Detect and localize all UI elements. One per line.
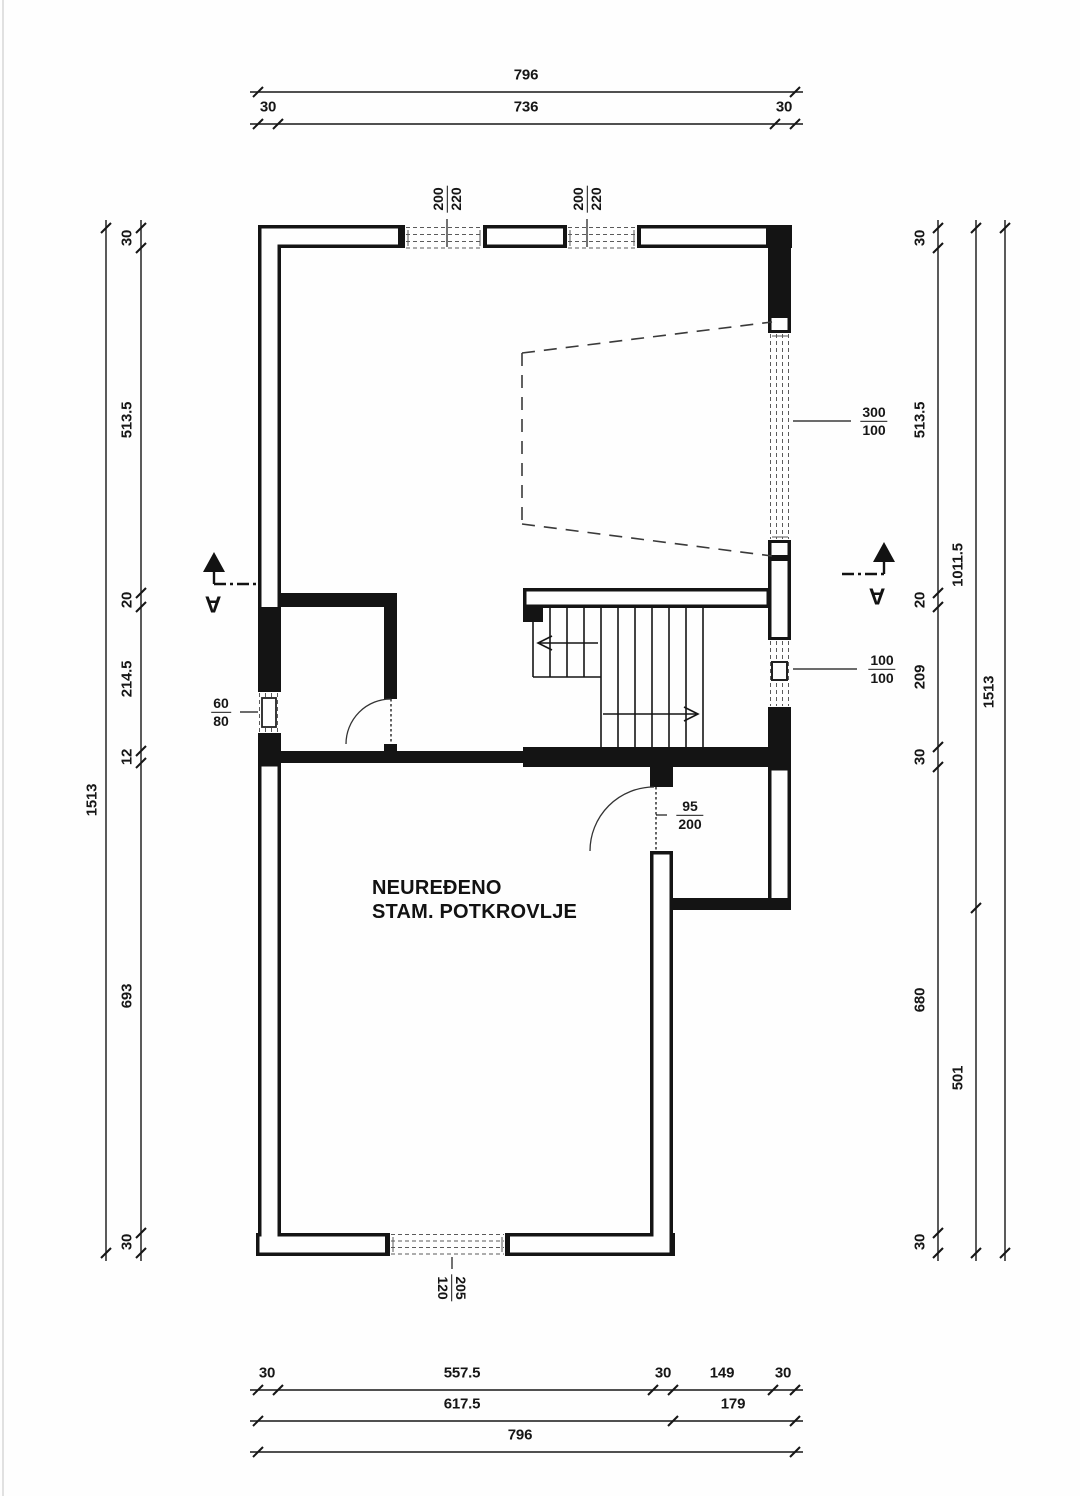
dim-label: 30 <box>776 99 792 116</box>
drawing-sheet: 796 30 736 30 1513 30 513.5 20 214.5 12 … <box>0 0 1080 1496</box>
dim-label: 1011.5 <box>950 543 967 587</box>
left-wall <box>258 733 281 763</box>
dim-label: 557.5 <box>444 1365 481 1382</box>
door-main <box>590 787 656 851</box>
stair-room-bottom-wall <box>666 898 791 910</box>
dim-label: 30 <box>912 230 929 246</box>
dim-label: 214.5 <box>119 661 136 698</box>
walls <box>256 225 792 1256</box>
section-arrow-icon <box>203 552 225 572</box>
small-room-top-wall <box>280 593 397 607</box>
window-size-label: 300 100 <box>860 405 887 437</box>
door-jamb <box>650 767 673 787</box>
window-left-small <box>260 693 278 732</box>
dim-label: 30 <box>655 1365 671 1382</box>
window-bottom <box>391 1235 504 1255</box>
dim-label: 513.5 <box>119 402 136 439</box>
section-letter-right: A <box>869 583 886 610</box>
window-right-large <box>771 334 789 539</box>
window-size-label: 100 100 <box>868 653 895 685</box>
window-top-left <box>406 228 482 249</box>
window-size-label: 205 120 <box>436 1274 468 1301</box>
room-label: NEUREĐENO STAM. POTKROVLJE <box>372 876 577 924</box>
section-markers <box>203 542 895 584</box>
dim-label: 1513 <box>84 784 101 817</box>
left-wall <box>258 607 281 692</box>
dim-label: 693 <box>119 984 136 1008</box>
windows <box>260 228 789 1255</box>
dim-label: 149 <box>710 1365 734 1382</box>
window-size-label: 200 220 <box>571 185 603 212</box>
dim-label: 30 <box>912 749 929 765</box>
dim-label: 617.5 <box>444 1396 481 1413</box>
dim-label: 20 <box>119 592 136 608</box>
dim-label: 680 <box>912 988 929 1012</box>
dim-label: 501 <box>950 1066 967 1090</box>
dim-label: 30 <box>260 99 276 116</box>
dim-label: 796 <box>514 67 538 84</box>
dim-label: 513.5 <box>912 402 929 439</box>
leader-lines <box>240 219 857 1269</box>
staircase <box>533 608 703 747</box>
dim-label: 179 <box>721 1396 745 1413</box>
main-room-top-wall-thin <box>280 751 523 763</box>
dim-label: 1513 <box>981 676 998 709</box>
door-small-room <box>346 699 391 744</box>
section-marker-right <box>842 542 895 574</box>
dim-label: 30 <box>119 1234 136 1250</box>
dim-label: 796 <box>508 1427 532 1444</box>
room-label-line1: NEUREĐENO <box>372 876 577 900</box>
dim-label: 30 <box>775 1365 791 1382</box>
window-size-label: 200 220 <box>431 185 463 212</box>
section-marker-left <box>203 552 257 584</box>
section-letter-left: A <box>205 591 222 618</box>
dim-label: 30 <box>912 1234 929 1250</box>
roof-slope-dashed-lines <box>522 322 772 556</box>
dim-label: 12 <box>119 749 136 765</box>
stair-arrow-up-run <box>538 636 598 650</box>
main-room-top-wall-thick <box>523 747 791 767</box>
dim-label: 209 <box>912 665 929 689</box>
section-arrow-icon <box>873 542 895 562</box>
window-right-small <box>771 641 789 706</box>
dim-label: 20 <box>912 592 929 608</box>
room-label-line2: STAM. POTKROVLJE <box>372 900 577 924</box>
floor-plan-page: { "plan": { "room_label_line1": "NEUREĐE… <box>0 0 1080 1496</box>
window-size-label: 60 80 <box>211 696 231 728</box>
window-top-right <box>568 228 636 249</box>
doors <box>346 699 656 851</box>
small-room-right-wall <box>384 593 397 699</box>
right-wall <box>768 225 791 315</box>
dim-label: 30 <box>119 230 136 246</box>
door-size-label: 95 200 <box>676 799 703 831</box>
wall-cores <box>260 229 788 1253</box>
dim-label: 30 <box>259 1365 275 1382</box>
dim-label: 736 <box>514 99 538 116</box>
